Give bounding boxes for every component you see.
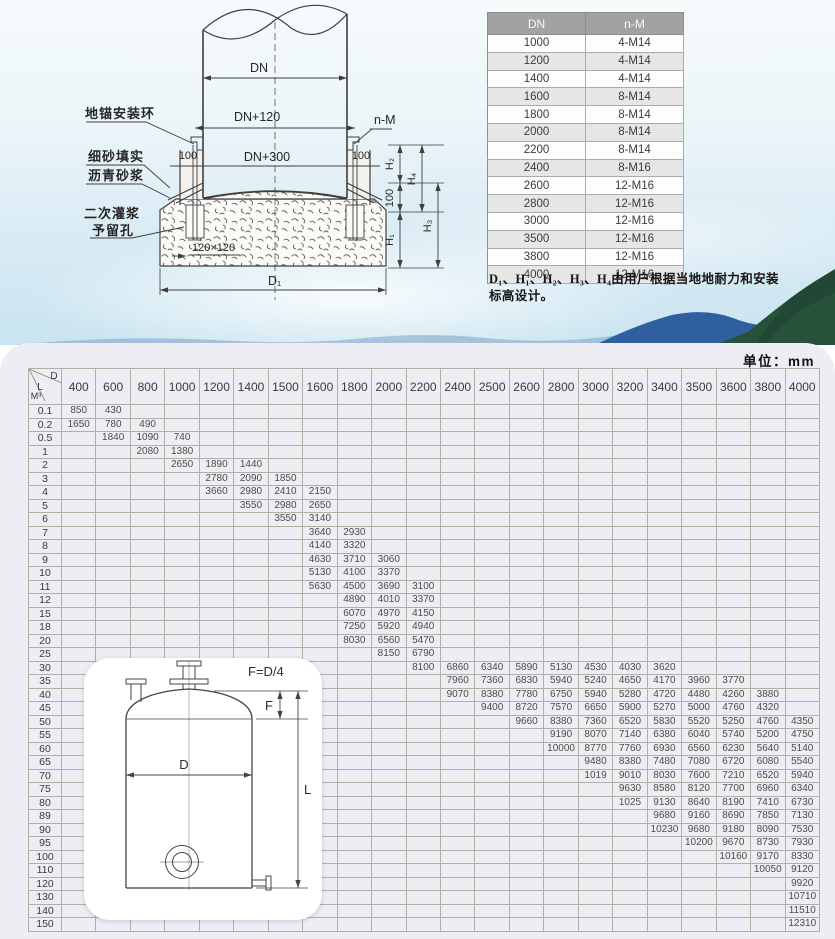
- capacity-row-label: 7: [29, 526, 62, 540]
- capacity-cell: [130, 486, 164, 500]
- capacity-column-header: 3200: [613, 369, 647, 405]
- capacity-cell: [337, 405, 371, 419]
- capacity-cell: [544, 472, 578, 486]
- capacity-cell: [337, 742, 371, 756]
- tank-inset-card: F=D/4 F D L: [84, 658, 322, 920]
- capacity-cell: [751, 877, 785, 891]
- capacity-cell: [509, 742, 543, 756]
- capacity-cell: [613, 823, 647, 837]
- capacity-cell: [62, 445, 96, 459]
- capacity-row: 2265018901440: [29, 459, 820, 473]
- capacity-cell: [372, 864, 406, 878]
- dn-dim-label: DN: [250, 61, 268, 75]
- capacity-cell: [372, 459, 406, 473]
- capacity-cell: 9480: [578, 756, 612, 770]
- capacity-cell: [337, 918, 371, 932]
- capacity-cell: 3100: [406, 580, 440, 594]
- capacity-cell: [406, 864, 440, 878]
- capacity-cell: [716, 526, 750, 540]
- capacity-cell: 5130: [303, 567, 337, 581]
- capacity-cell: [337, 810, 371, 824]
- capacity-cell: 8690: [716, 810, 750, 824]
- capacity-cell: 2930: [337, 526, 371, 540]
- capacity-cell: 5250: [716, 715, 750, 729]
- dn-table-row: 14004-M14: [488, 70, 684, 88]
- capacity-column-header: 3500: [682, 369, 716, 405]
- d-dim-label: D: [179, 757, 188, 772]
- capacity-cell: [303, 445, 337, 459]
- capacity-cell: [475, 472, 509, 486]
- capacity-cell: [199, 526, 233, 540]
- capacity-cell: 2150: [303, 486, 337, 500]
- dn-table-row: 380012-M16: [488, 248, 684, 266]
- capacity-cell: [372, 756, 406, 770]
- capacity-cell: [62, 621, 96, 635]
- capacity-cell: [440, 702, 474, 716]
- capacity-row: 115630450036903100: [29, 580, 820, 594]
- capacity-cell: [406, 432, 440, 446]
- capacity-cell: [337, 648, 371, 662]
- capacity-cell: [578, 918, 612, 932]
- capacity-cell: 4170: [647, 675, 681, 689]
- capacity-cell: [440, 904, 474, 918]
- capacity-cell: 9070: [440, 688, 474, 702]
- capacity-cell: [234, 432, 268, 446]
- capacity-cell: 3710: [337, 553, 371, 567]
- capacity-cell: 6520: [613, 715, 647, 729]
- capacity-cell: [647, 594, 681, 608]
- capacity-cell: 3660: [199, 486, 233, 500]
- capacity-cell: [130, 634, 164, 648]
- capacity-cell: 9400: [475, 702, 509, 716]
- capacity-cell: [751, 648, 785, 662]
- dn-table-cell: 4-M14: [586, 70, 684, 88]
- capacity-cell: [440, 526, 474, 540]
- capacity-cell: 3640: [303, 526, 337, 540]
- capacity-cell: [509, 486, 543, 500]
- capacity-cell: [682, 513, 716, 527]
- dn-table-row: 350012-M16: [488, 230, 684, 248]
- capacity-cell: [199, 567, 233, 581]
- capacity-cell: 780: [96, 418, 130, 432]
- f-formula-label: F=D/4: [248, 664, 284, 679]
- capacity-cell: [440, 810, 474, 824]
- capacity-cell: [406, 526, 440, 540]
- capacity-cell: 2090: [234, 472, 268, 486]
- capacity-cell: [785, 432, 819, 446]
- capacity-cell: 6040: [682, 729, 716, 743]
- capacity-cell: [578, 607, 612, 621]
- capacity-cell: 4500: [337, 580, 371, 594]
- capacity-row: 9463037103060: [29, 553, 820, 567]
- capacity-cell: [234, 580, 268, 594]
- capacity-row-label: 30: [29, 661, 62, 675]
- capacity-cell: [716, 661, 750, 675]
- capacity-cell: [647, 648, 681, 662]
- capacity-row-label: 20: [29, 634, 62, 648]
- capacity-cell: [372, 405, 406, 419]
- dn-table: DN n-M 10004-M1412004-M1414004-M1416008-…: [487, 12, 684, 284]
- capacity-cell: [372, 823, 406, 837]
- capacity-cell: 10160: [716, 850, 750, 864]
- capacity-cell: [440, 567, 474, 581]
- capacity-cell: [475, 540, 509, 554]
- capacity-cell: 1890: [199, 459, 233, 473]
- capacity-cell: [682, 877, 716, 891]
- capacity-cell: [544, 459, 578, 473]
- capacity-cell: [475, 864, 509, 878]
- capacity-row-label: 8: [29, 540, 62, 554]
- dn-table-cell: 8-M14: [586, 88, 684, 106]
- capacity-cell: [613, 526, 647, 540]
- dn120-dim-label: DN+120: [234, 110, 280, 124]
- capacity-cell: 8030: [337, 634, 371, 648]
- capacity-row-label: 90: [29, 823, 62, 837]
- capacity-cell: [440, 823, 474, 837]
- capacity-cell: [62, 594, 96, 608]
- capacity-row-label: 9: [29, 553, 62, 567]
- capacity-cell: [509, 594, 543, 608]
- capacity-cell: [96, 472, 130, 486]
- capacity-cell: [751, 904, 785, 918]
- capacity-cell: [406, 540, 440, 554]
- capacity-cell: [234, 594, 268, 608]
- dn-table-row: 260012-M16: [488, 177, 684, 195]
- dn-table-header-row: DN n-M: [488, 13, 684, 35]
- capacity-cell: [337, 513, 371, 527]
- capacity-cell: [372, 688, 406, 702]
- capacity-column-header: 3000: [578, 369, 612, 405]
- capacity-cell: [716, 891, 750, 905]
- capacity-cell: 3370: [406, 594, 440, 608]
- capacity-cell: [62, 472, 96, 486]
- capacity-cell: [544, 405, 578, 419]
- capacity-cell: [682, 418, 716, 432]
- capacity-cell: [716, 904, 750, 918]
- capacity-row-label: 120: [29, 877, 62, 891]
- capacity-cell: [785, 634, 819, 648]
- capacity-cell: 9170: [751, 850, 785, 864]
- capacity-cell: 1380: [165, 445, 199, 459]
- capacity-cell: 4320: [751, 702, 785, 716]
- capacity-cell: [372, 432, 406, 446]
- capacity-cell: 5940: [578, 688, 612, 702]
- tank-drawing: F=D/4 F D L: [84, 658, 322, 920]
- capacity-cell: [372, 675, 406, 689]
- capacity-cell: [647, 459, 681, 473]
- capacity-cell: [613, 499, 647, 513]
- capacity-cell: [199, 594, 233, 608]
- capacity-cell: 1650: [62, 418, 96, 432]
- capacity-row-label: 25: [29, 648, 62, 662]
- capacity-cell: [165, 499, 199, 513]
- capacity-cell: 7360: [475, 675, 509, 689]
- capacity-cell: [509, 769, 543, 783]
- capacity-cell: [337, 729, 371, 743]
- capacity-cell: [303, 418, 337, 432]
- capacity-cell: 8190: [716, 796, 750, 810]
- capacity-cell: [406, 891, 440, 905]
- capacity-cell: [475, 850, 509, 864]
- capacity-cell: [578, 891, 612, 905]
- capacity-cell: 1019: [578, 769, 612, 783]
- capacity-cell: [544, 756, 578, 770]
- capacity-cell: [475, 634, 509, 648]
- capacity-cell: [475, 486, 509, 500]
- capacity-cell: [751, 499, 785, 513]
- capacity-row-label: 140: [29, 904, 62, 918]
- capacity-cell: [96, 594, 130, 608]
- capacity-cell: [751, 472, 785, 486]
- dn-table-cell: 2400: [488, 159, 586, 177]
- capacity-header-row: D L M³ 400600800100012001400150016001800…: [29, 369, 820, 405]
- capacity-cell: [130, 405, 164, 419]
- capacity-cell: [440, 472, 474, 486]
- capacity-cell: [475, 459, 509, 473]
- capacity-cell: [613, 472, 647, 486]
- capacity-cell: [647, 486, 681, 500]
- capacity-cell: [475, 594, 509, 608]
- capacity-cell: [509, 553, 543, 567]
- capacity-column-header: 2600: [509, 369, 543, 405]
- capacity-cell: 6750: [544, 688, 578, 702]
- capacity-cell: [716, 472, 750, 486]
- capacity-cell: [509, 567, 543, 581]
- capacity-cell: [62, 486, 96, 500]
- unit-label: 单位：mm: [743, 350, 815, 370]
- capacity-cell: [785, 405, 819, 419]
- capacity-cell: 5920: [372, 621, 406, 635]
- capacity-cell: [406, 418, 440, 432]
- capacity-cell: [785, 513, 819, 527]
- capacity-cell: [199, 405, 233, 419]
- capacity-cell: 6790: [406, 648, 440, 662]
- capacity-cell: 5130: [544, 661, 578, 675]
- capacity-cell: [751, 661, 785, 675]
- catalog-page: DN DN+120 DN+300 100 100 n-M 地锚安装环 细砂填实 …: [0, 0, 835, 939]
- capacity-cell: [785, 418, 819, 432]
- capacity-cell: 5830: [647, 715, 681, 729]
- capacity-cell: 7600: [682, 769, 716, 783]
- capacity-cell: [440, 837, 474, 851]
- capacity-cell: 7480: [647, 756, 681, 770]
- capacity-column-header: 1200: [199, 369, 233, 405]
- capacity-row: 43660298024102150: [29, 486, 820, 500]
- capacity-cell: [440, 607, 474, 621]
- capacity-cell: 4760: [716, 702, 750, 716]
- capacity-cell: [199, 607, 233, 621]
- capacity-row: 12489040103370: [29, 594, 820, 608]
- capacity-cell: [613, 850, 647, 864]
- capacity-row-label: 75: [29, 783, 62, 797]
- capacity-cell: [337, 783, 371, 797]
- dn-table-cell: 2000: [488, 123, 586, 141]
- capacity-cell: [647, 432, 681, 446]
- capacity-cell: 1025: [613, 796, 647, 810]
- capacity-cell: [578, 783, 612, 797]
- capacity-cell: 4010: [372, 594, 406, 608]
- capacity-cell: 6720: [716, 756, 750, 770]
- capacity-cell: 9680: [647, 810, 681, 824]
- capacity-cell: [578, 796, 612, 810]
- capacity-cell: [406, 459, 440, 473]
- capacity-cell: [475, 648, 509, 662]
- capacity-cell: 7700: [716, 783, 750, 797]
- capacity-row-label: 15: [29, 607, 62, 621]
- capacity-column-header: 2000: [372, 369, 406, 405]
- capacity-cell: [268, 445, 302, 459]
- capacity-row: 120801380: [29, 445, 820, 459]
- capacity-cell: [130, 621, 164, 635]
- capacity-cell: [475, 904, 509, 918]
- capacity-cell: [647, 405, 681, 419]
- capacity-column-header: 1000: [165, 369, 199, 405]
- capacity-cell: [337, 445, 371, 459]
- capacity-cell: [613, 445, 647, 459]
- capacity-cell: [716, 594, 750, 608]
- capacity-cell: [647, 472, 681, 486]
- capacity-cell: 6930: [647, 742, 681, 756]
- capacity-cell: [751, 634, 785, 648]
- capacity-cell: [613, 607, 647, 621]
- capacity-cell: [440, 594, 474, 608]
- capacity-cell: [647, 918, 681, 932]
- capacity-cell: [647, 607, 681, 621]
- capacity-cell: 9120: [785, 864, 819, 878]
- capacity-cell: [509, 472, 543, 486]
- capacity-cell: [303, 634, 337, 648]
- capacity-row-label: 130: [29, 891, 62, 905]
- capacity-cell: [96, 621, 130, 635]
- capacity-cell: [544, 594, 578, 608]
- capacity-cell: 8720: [509, 702, 543, 716]
- capacity-cell: 3140: [303, 513, 337, 527]
- capacity-cell: [716, 486, 750, 500]
- capacity-cell: [130, 540, 164, 554]
- capacity-cell: 6730: [785, 796, 819, 810]
- capacity-cell: [130, 567, 164, 581]
- capacity-row: 20803065605470: [29, 634, 820, 648]
- capacity-cell: 850: [62, 405, 96, 419]
- capacity-cell: [406, 486, 440, 500]
- capacity-cell: [682, 445, 716, 459]
- capacity-cell: 5280: [613, 688, 647, 702]
- capacity-cell: [62, 580, 96, 594]
- capacity-cell: [475, 769, 509, 783]
- capacity-cell: [475, 823, 509, 837]
- dim-100-left: 100: [179, 150, 197, 162]
- capacity-cell: [613, 918, 647, 932]
- capacity-cell: [751, 553, 785, 567]
- capacity-row-label: 0.1: [29, 405, 62, 419]
- capacity-cell: [130, 513, 164, 527]
- capacity-cell: [406, 837, 440, 851]
- capacity-cell: 5890: [509, 661, 543, 675]
- capacity-cell: 11510: [785, 904, 819, 918]
- capacity-row: 0.518401090740: [29, 432, 820, 446]
- capacity-column-header: 2200: [406, 369, 440, 405]
- capacity-cell: [751, 891, 785, 905]
- capacity-cell: 8090: [751, 823, 785, 837]
- capacity-cell: [682, 891, 716, 905]
- capacity-cell: 7360: [578, 715, 612, 729]
- capacity-cell: [406, 810, 440, 824]
- capacity-cell: [440, 850, 474, 864]
- capacity-cell: [440, 769, 474, 783]
- dn-table-cell: 3800: [488, 248, 586, 266]
- capacity-cell: [716, 499, 750, 513]
- capacity-cell: [544, 877, 578, 891]
- h3-dim-label: H₃: [422, 220, 434, 232]
- capacity-cell: [372, 526, 406, 540]
- capacity-cell: [337, 837, 371, 851]
- capacity-column-header: 400: [62, 369, 96, 405]
- capacity-cell: 2980: [268, 499, 302, 513]
- dn-table-cell: 3000: [488, 212, 586, 230]
- capacity-cell: [440, 715, 474, 729]
- capacity-cell: [578, 567, 612, 581]
- capacity-cell: 9660: [509, 715, 543, 729]
- capacity-cell: [578, 864, 612, 878]
- capacity-cell: 10710: [785, 891, 819, 905]
- capacity-cell: [234, 445, 268, 459]
- capacity-cell: [578, 405, 612, 419]
- capacity-cell: 8030: [647, 769, 681, 783]
- capacity-cell: [613, 864, 647, 878]
- capacity-cell: [337, 702, 371, 716]
- capacity-cell: [440, 459, 474, 473]
- capacity-cell: 9630: [613, 783, 647, 797]
- capacity-row: 5355029802650: [29, 499, 820, 513]
- capacity-cell: 4970: [372, 607, 406, 621]
- capacity-cell: [716, 540, 750, 554]
- capacity-cell: [130, 607, 164, 621]
- dn-table-cell: 3500: [488, 230, 586, 248]
- capacity-cell: [613, 580, 647, 594]
- capacity-cell: [716, 432, 750, 446]
- capacity-cell: 4630: [303, 553, 337, 567]
- capacity-cell: [475, 526, 509, 540]
- capacity-cell: [303, 594, 337, 608]
- capacity-cell: [716, 418, 750, 432]
- capacity-cell: [440, 540, 474, 554]
- capacity-cell: [96, 540, 130, 554]
- capacity-cell: [613, 594, 647, 608]
- capacity-cell: [234, 621, 268, 635]
- capacity-cell: [544, 418, 578, 432]
- capacity-cell: 4030: [613, 661, 647, 675]
- capacity-cell: 3620: [647, 661, 681, 675]
- capacity-cell: [578, 634, 612, 648]
- capacity-cell: 2650: [165, 459, 199, 473]
- capacity-cell: [199, 540, 233, 554]
- capacity-cell: [475, 742, 509, 756]
- capacity-cell: [406, 499, 440, 513]
- capacity-cell: [682, 432, 716, 446]
- capacity-cell: [165, 553, 199, 567]
- capacity-row-label: 65: [29, 756, 62, 770]
- capacity-cell: [337, 432, 371, 446]
- capacity-cell: 3960: [682, 675, 716, 689]
- dn-table-cell: 1600: [488, 88, 586, 106]
- capacity-cell: [716, 864, 750, 878]
- capacity-cell: 8380: [475, 688, 509, 702]
- capacity-cell: 7140: [613, 729, 647, 743]
- capacity-cell: [372, 486, 406, 500]
- capacity-cell: [647, 499, 681, 513]
- capacity-cell: 7210: [716, 769, 750, 783]
- capacity-cell: [785, 472, 819, 486]
